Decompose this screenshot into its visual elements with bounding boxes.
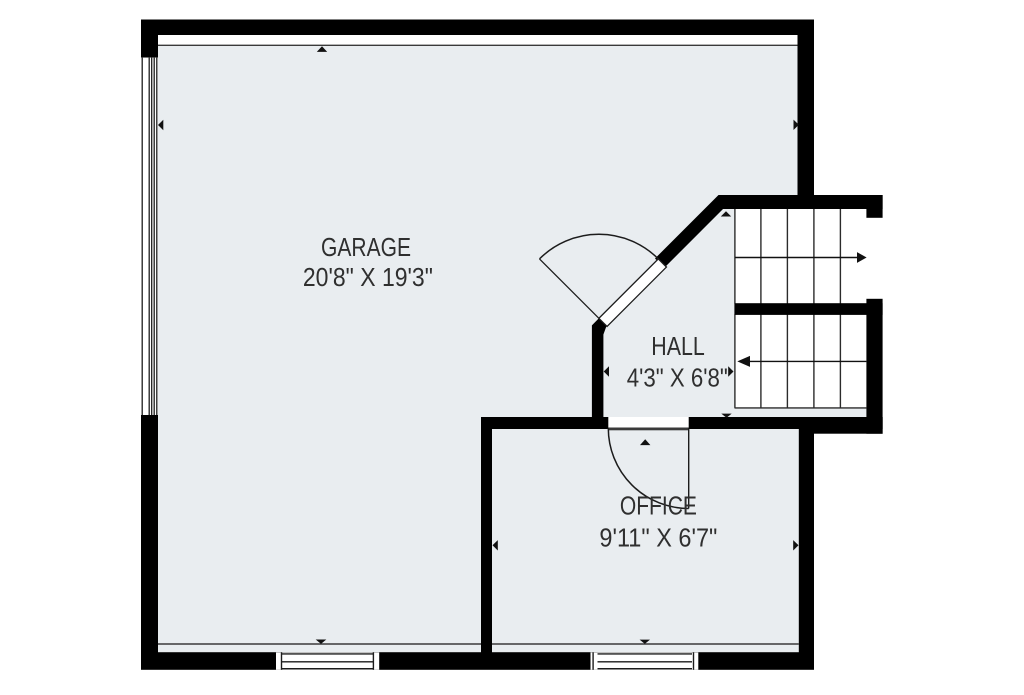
svg-text:OFFICE: OFFICE <box>620 493 697 521</box>
svg-text:20'8" X 19'3": 20'8" X 19'3" <box>303 264 433 292</box>
svg-text:HALL: HALL <box>651 333 705 361</box>
svg-text:GARAGE: GARAGE <box>321 234 411 262</box>
svg-text:4'3" X 6'8": 4'3" X 6'8" <box>627 364 728 392</box>
svg-text:9'11" X 6'7": 9'11" X 6'7" <box>599 524 717 552</box>
